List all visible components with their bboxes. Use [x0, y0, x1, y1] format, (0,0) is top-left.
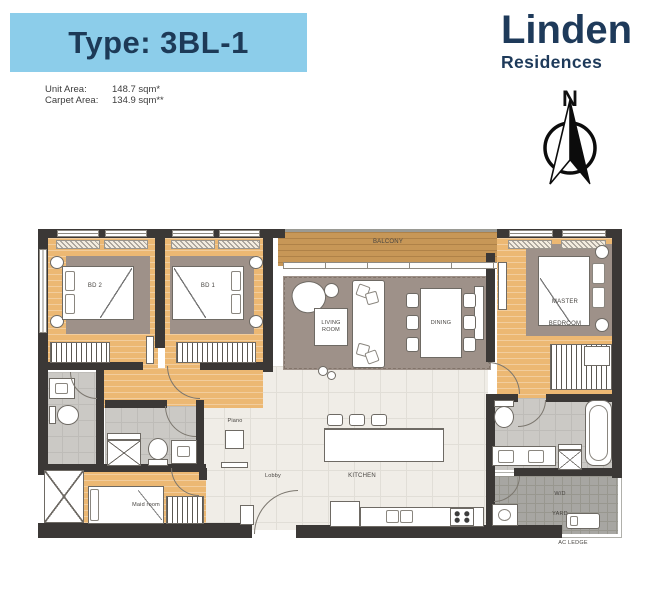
- window-icon: [219, 230, 260, 237]
- toilet-tank-icon: [49, 406, 56, 424]
- kitchen-island-icon: [324, 428, 444, 462]
- headboard-icon: [592, 263, 605, 284]
- shaft-icon: [44, 470, 84, 523]
- stool-icon: [327, 414, 343, 426]
- window-icon: [57, 230, 99, 237]
- master-bedroom-label-line: BEDROOM: [537, 321, 593, 328]
- window-icon: [172, 230, 214, 237]
- wall: [46, 362, 143, 370]
- shaft-icon: [558, 450, 582, 470]
- nightstand-lamp-icon: [595, 245, 609, 259]
- window-icon: [105, 230, 147, 237]
- toilet-icon: [57, 405, 79, 425]
- wall: [38, 523, 252, 538]
- bathtub-inner: [589, 405, 608, 461]
- wall: [155, 238, 165, 348]
- dining-table-icon: DINING: [420, 288, 462, 358]
- sink-basin-icon: [55, 383, 68, 394]
- curtain-icon: [171, 240, 215, 249]
- wall: [612, 229, 622, 478]
- balcony-edge-line: [285, 229, 497, 232]
- curtain-icon: [218, 240, 260, 249]
- blanket-fold-icon: [100, 268, 132, 318]
- wd-yard-label-line: YARD: [538, 511, 582, 518]
- shelf-icon: [584, 346, 610, 366]
- stove-icon: [450, 508, 474, 526]
- wardrobe-icon: [176, 342, 256, 363]
- shoe-cabinet-icon: [240, 505, 254, 525]
- maid-room-label: Maid room: [118, 502, 174, 509]
- fridge-icon: [330, 501, 360, 527]
- wall: [199, 468, 207, 480]
- toilet-icon: [148, 438, 168, 460]
- nightstand-lamp-icon: [249, 315, 263, 328]
- coffee-table-icon: LIVING ROOM: [314, 308, 348, 346]
- blanket-fold-icon: [174, 268, 206, 318]
- sliding-door-icon: [283, 262, 497, 269]
- washer-drum-icon: [498, 509, 511, 521]
- floor-lamp-icon: [327, 371, 336, 380]
- living-room-label: ROOM: [322, 327, 340, 334]
- balcony-label: BALCONY: [330, 239, 446, 246]
- headboard-icon: [592, 287, 605, 308]
- toilet-icon: [494, 406, 514, 428]
- page: { "header": { "type_title": "Type: 3BL-1…: [0, 0, 659, 600]
- nightstand-lamp-icon: [249, 256, 263, 269]
- chair-icon: [406, 337, 419, 352]
- wall: [196, 400, 204, 472]
- sink-icon: [386, 510, 399, 523]
- living-room-label: LIVING: [321, 320, 340, 327]
- pillow-icon: [231, 294, 241, 314]
- piano-bench-icon: [221, 462, 248, 468]
- lobby-label: Lobby: [255, 473, 291, 480]
- pillow-icon: [90, 489, 99, 521]
- bd2-label: BD 2: [73, 283, 117, 290]
- bd1-label: BD 1: [186, 283, 230, 290]
- piano-icon: [225, 430, 244, 449]
- curtain-icon: [508, 240, 552, 249]
- door-leaf-icon: [146, 336, 154, 364]
- window-icon: [509, 230, 553, 237]
- wall: [200, 362, 263, 370]
- master-bedroom-label-line: MASTER: [537, 299, 593, 306]
- chair-icon: [463, 337, 476, 352]
- vanity-counter: [107, 433, 141, 440]
- sink-basin-icon: [498, 450, 514, 463]
- stool-icon: [349, 414, 365, 426]
- window-icon: [562, 230, 606, 237]
- stool-icon: [371, 414, 387, 426]
- toilet-tank-icon: [148, 459, 168, 466]
- ac-ledge-label: AC LEDGE: [545, 540, 601, 547]
- window-icon: [39, 249, 47, 333]
- sink-icon: [400, 510, 413, 523]
- wall: [105, 400, 167, 408]
- pillow-icon: [65, 294, 75, 314]
- floor-plan: LIVING ROOM DINING: [0, 0, 659, 600]
- kitchen-label: KITCHEN: [332, 473, 392, 480]
- nightstand-lamp-icon: [595, 318, 609, 332]
- wardrobe-icon: [50, 342, 110, 363]
- chair-icon: [406, 315, 419, 330]
- master-bedroom-label: MASTER BEDROOM: [537, 285, 593, 343]
- chair-icon: [406, 293, 419, 308]
- wall: [486, 253, 495, 362]
- wall: [96, 368, 104, 470]
- curtain-icon: [56, 240, 100, 249]
- wd-yard-label-line: W/D: [538, 491, 582, 498]
- wd-yard-label: W/D YARD: [538, 478, 582, 531]
- curtain-icon: [104, 240, 148, 249]
- wall: [263, 238, 273, 372]
- piano-label: Piano: [218, 418, 252, 425]
- pillow-icon: [231, 271, 241, 291]
- sink-basin-icon: [528, 450, 544, 463]
- balcony-floor: [278, 232, 497, 266]
- chair-icon: [463, 293, 476, 308]
- chair-icon: [463, 315, 476, 330]
- side-table-icon: [324, 283, 339, 298]
- sink-basin-icon: [177, 446, 190, 457]
- cabinet-icon: [498, 262, 507, 310]
- dining-label: DINING: [431, 320, 451, 327]
- shaft-icon: [107, 440, 141, 466]
- wardrobe-icon: [166, 496, 204, 524]
